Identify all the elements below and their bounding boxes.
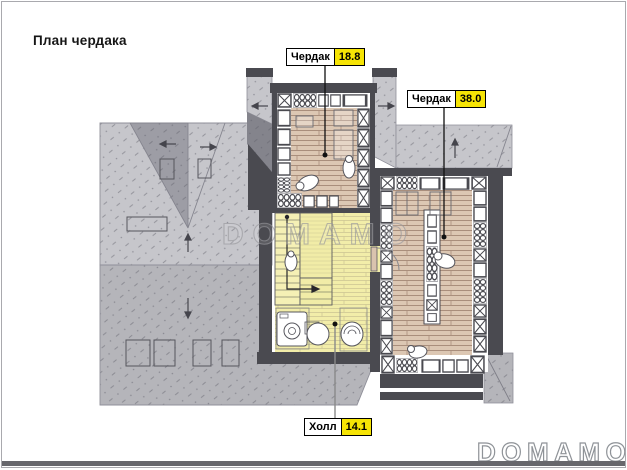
chimney-stack [424, 210, 440, 324]
washer-icon [277, 312, 307, 346]
area-label-name: Чердак [408, 91, 456, 107]
area-label-name: Чердак [287, 49, 335, 65]
wall-hall-top [262, 208, 380, 213]
wall-mid-vertical [370, 93, 375, 176]
room-hall-14-1 [275, 213, 370, 352]
area-label-hall-14-1: Холл 14.1 [304, 418, 372, 436]
wall-room38-right [488, 176, 503, 355]
wall-cap-right [372, 68, 397, 77]
wall-hall-bottom [257, 352, 380, 364]
room-attic-38-0 [370, 176, 488, 373]
area-label-cherdak-18-8: Чердак 18.8 [286, 48, 365, 66]
page-title: План чердака [33, 33, 127, 48]
shell-chair-icon [341, 322, 363, 346]
area-label-value: 18.8 [335, 49, 364, 65]
bottom-border-band [2, 461, 625, 466]
area-label-value: 38.0 [456, 91, 485, 107]
wall-cap-left [246, 68, 273, 77]
attic-plan-page: { "page": { "title": "План чердака" }, "… [0, 0, 627, 470]
wall-room18-top [270, 83, 377, 93]
area-label-cherdak-38-0: Чердак 38.0 [407, 90, 486, 108]
wall-room38-left-upper [370, 176, 380, 246]
wall-eaves-strip [380, 392, 483, 400]
floor-plan-drawing [0, 0, 627, 470]
area-label-name: Холл [305, 419, 342, 435]
wall-room38-bottom [380, 374, 483, 388]
wall-room38-top [373, 168, 512, 176]
staircase [275, 213, 332, 305]
room-attic-18-8 [277, 93, 370, 208]
wall-room38-left-lower [370, 272, 380, 372]
wall-room18-left [272, 93, 277, 208]
area-label-value: 14.1 [342, 419, 371, 435]
